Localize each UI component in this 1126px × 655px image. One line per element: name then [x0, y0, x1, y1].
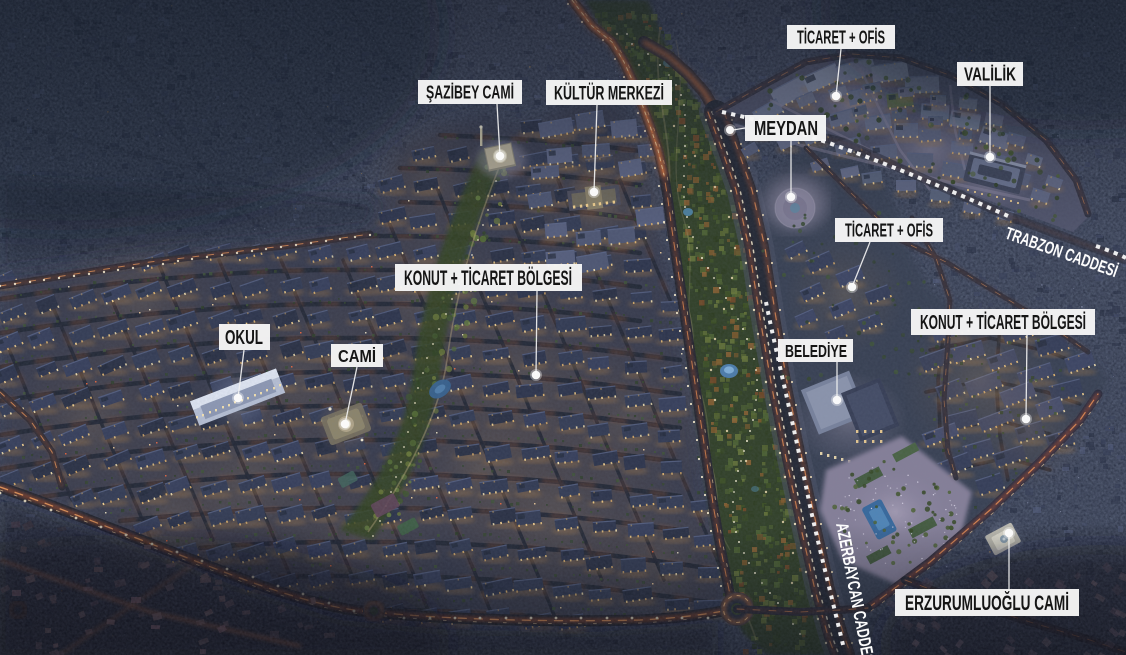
svg-text:TİCARET + OFİS: TİCARET + OFİS: [845, 220, 933, 241]
svg-text:BELEDİYE: BELEDİYE: [785, 341, 847, 361]
svg-text:MEYDAN: MEYDAN: [754, 118, 818, 140]
svg-text:KONUT + TİCARET BÖLGESİ: KONUT + TİCARET BÖLGESİ: [920, 311, 1086, 334]
svg-text:CAMİ: CAMİ: [338, 346, 376, 366]
svg-text:TİCARET + OFİS: TİCARET + OFİS: [797, 27, 885, 48]
svg-text:VALİLİK: VALİLİK: [964, 64, 1016, 85]
svg-text:KONUT + TİCARET BÖLGESİ: KONUT + TİCARET BÖLGESİ: [404, 267, 572, 290]
svg-text:OKUL: OKUL: [225, 327, 263, 349]
svg-text:ERZURUMLUOĞLU CAMİ: ERZURUMLUOĞLU CAMİ: [905, 591, 1069, 615]
svg-text:KÜLTÜR MERKEZİ: KÜLTÜR MERKEZİ: [554, 81, 664, 104]
svg-text:ŞAZİBEY CAMİ: ŞAZİBEY CAMİ: [426, 82, 514, 103]
